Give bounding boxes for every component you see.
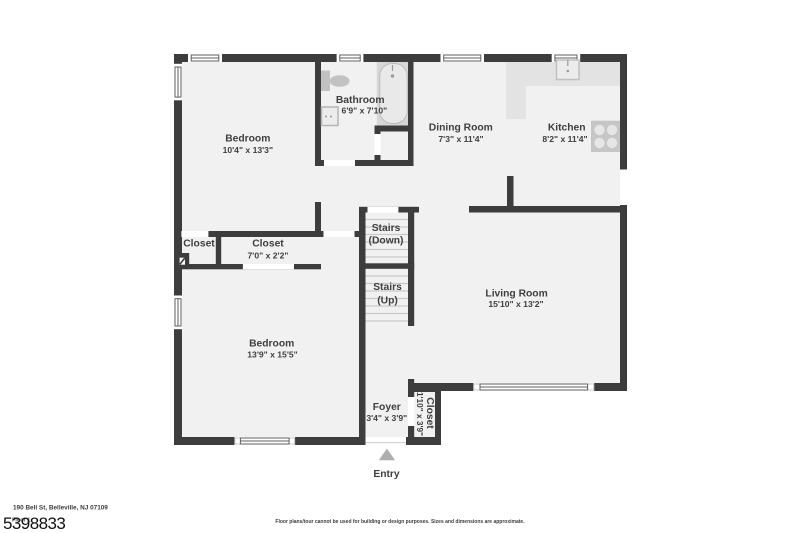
svg-text:Floor plans/tour cannot be use: Floor plans/tour cannot be used for buil…: [275, 519, 525, 525]
svg-text:10'4" x 13'3": 10'4" x 13'3": [223, 145, 273, 155]
svg-text:7'0" x 2'2": 7'0" x 2'2": [248, 251, 289, 261]
svg-text:Closet: Closet: [183, 238, 215, 249]
svg-text:Stairs: Stairs: [372, 223, 401, 234]
svg-text:(Up): (Up): [377, 296, 398, 307]
svg-text:5398833: 5398833: [3, 514, 65, 533]
svg-text:190 Bell St, Belleville, NJ 07: 190 Bell St, Belleville, NJ 07109: [13, 505, 108, 512]
svg-text:Bathroom: Bathroom: [336, 95, 385, 106]
svg-text:Stairs: Stairs: [373, 282, 402, 293]
svg-text:(Down): (Down): [369, 235, 404, 246]
svg-text:1'10" x 3'9": 1'10" x 3'9": [415, 392, 425, 436]
svg-text:Living Room: Living Room: [485, 288, 547, 299]
svg-text:3'4" x 3'9": 3'4" x 3'9": [366, 413, 407, 423]
svg-text:13'9" x 15'5": 13'9" x 15'5": [247, 350, 297, 360]
svg-text:Bedroom: Bedroom: [249, 338, 294, 349]
svg-text:Foyer: Foyer: [373, 402, 401, 413]
svg-text:Bedroom: Bedroom: [225, 134, 270, 145]
svg-text:15'10" x 13'2": 15'10" x 13'2": [488, 299, 543, 309]
svg-text:6'9" x 7'10": 6'9" x 7'10": [342, 105, 388, 115]
svg-text:Kitchen: Kitchen: [548, 123, 586, 134]
svg-text:Entry: Entry: [373, 469, 400, 480]
svg-text:7'3" x 11'4": 7'3" x 11'4": [438, 134, 483, 144]
svg-text:Dining Room: Dining Room: [429, 123, 493, 134]
svg-text:Closet: Closet: [252, 238, 284, 249]
svg-text:8'2" x 11'4": 8'2" x 11'4": [542, 134, 587, 144]
